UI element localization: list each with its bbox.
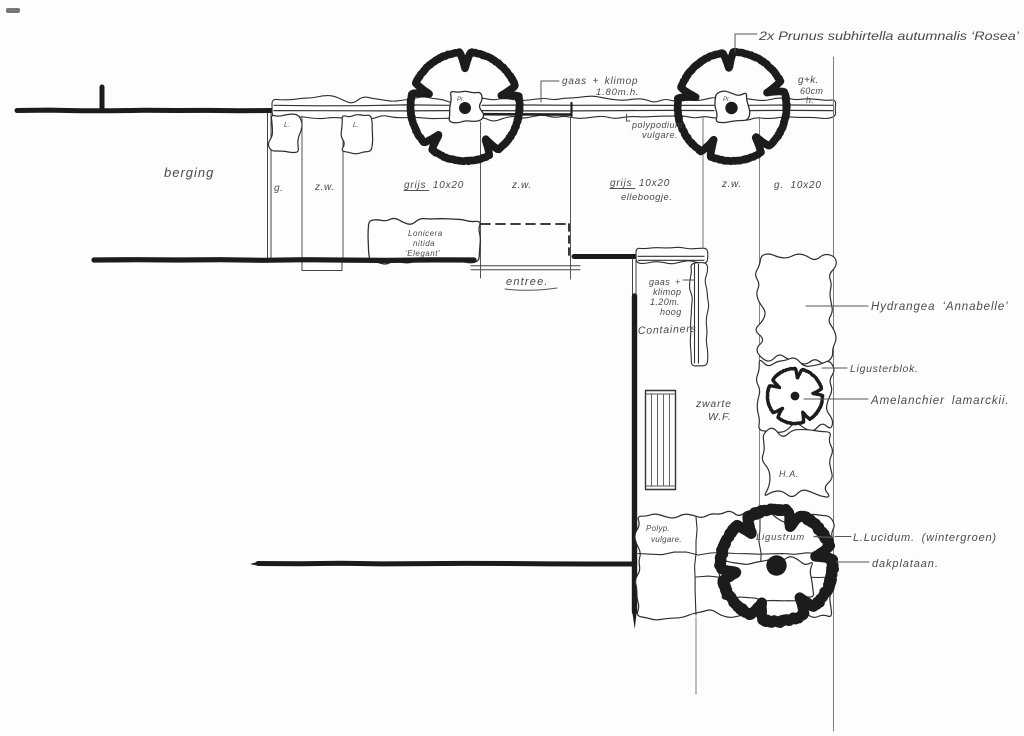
svg-text:Hydrangea ‘Annabelle’: Hydrangea ‘Annabelle’ [871,301,1009,313]
svg-text:g+k.: g+k. [798,75,819,86]
svg-text:gaas + klimop: gaas + klimop [562,76,638,87]
svg-text:elleboogje.: elleboogje. [621,192,672,203]
svg-text:L.: L. [353,122,359,129]
svg-text:Lonicera: Lonicera [408,229,443,238]
svg-text:Ligustrum: Ligustrum [756,532,805,543]
svg-text:vulgare.: vulgare. [642,130,678,140]
svg-text:entree.: entree. [506,276,549,288]
svg-text:Pr.: Pr. [723,97,730,103]
svg-text:H.A.: H.A. [779,469,799,479]
svg-text:1.20m.: 1.20m. [650,297,680,307]
svg-text:klimop: klimop [653,287,681,297]
svg-text:Polyp.: Polyp. [646,524,670,533]
svg-text:z.w.: z.w. [511,180,532,191]
svg-text:berging: berging [164,165,214,180]
svg-text:gaas +: gaas + [649,277,681,287]
svg-text:g. 10x20: g. 10x20 [774,180,822,191]
svg-text:Containers: Containers [638,323,697,337]
svg-text:zwarte: zwarte [695,398,732,410]
svg-text:nitida: nitida [413,239,435,248]
svg-text:dakplataan.: dakplataan. [872,558,939,570]
svg-text:polypodium: polypodium [631,120,683,130]
svg-text:Pr.: Pr. [457,97,464,103]
svg-text:hoog: hoog [660,307,682,317]
svg-text:Ligusterblok.: Ligusterblok. [850,363,919,375]
svg-text:L.Lucidum. (wintergroen): L.Lucidum. (wintergroen) [853,532,997,544]
svg-text:z.w.: z.w. [314,182,335,193]
svg-text:2x Prunus subhirtella autumnal: 2x Prunus subhirtella autumnalis ‘Rosea’ [758,31,1020,43]
svg-text:Amelanchier lamarckii.: Amelanchier lamarckii. [870,395,1009,407]
svg-text:W.F.: W.F. [708,411,732,423]
svg-text:vulgare.: vulgare. [651,535,682,544]
svg-text:‘Elegant’: ‘Elegant’ [405,249,440,258]
svg-text:grijs 10x20: grijs 10x20 [610,178,670,189]
svg-text:z.w.: z.w. [721,179,742,190]
svg-text:g.: g. [274,183,284,194]
svg-text:grijs 10x20: grijs 10x20 [404,180,464,191]
svg-text:L.: L. [284,122,290,129]
svg-text:1.80m.h.: 1.80m.h. [596,87,639,98]
svg-text:h.: h. [806,95,814,105]
